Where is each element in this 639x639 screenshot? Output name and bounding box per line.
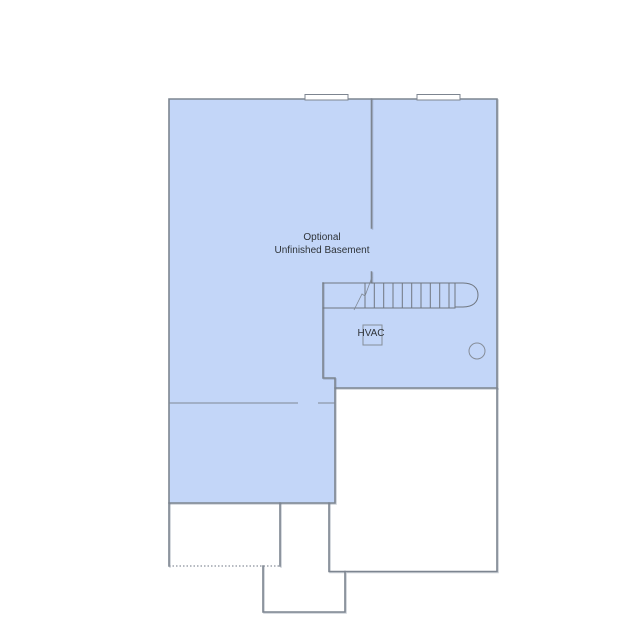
stoop-walls — [263, 566, 345, 612]
basement-shaded-area — [169, 99, 497, 503]
floor-plan: Optional Unfinished Basement HVAC — [0, 0, 639, 639]
garage-room-walls — [329, 388, 497, 572]
floor-plan-canvas: Optional Unfinished Basement HVAC — [0, 0, 639, 639]
room-label-line2: Unfinished Basement — [274, 245, 369, 256]
room-label-line1: Optional — [303, 232, 340, 243]
hvac-label: HVAC — [357, 328, 384, 339]
window-right — [417, 95, 460, 101]
window-left — [305, 95, 348, 101]
porch-side-walls — [169, 503, 280, 566]
